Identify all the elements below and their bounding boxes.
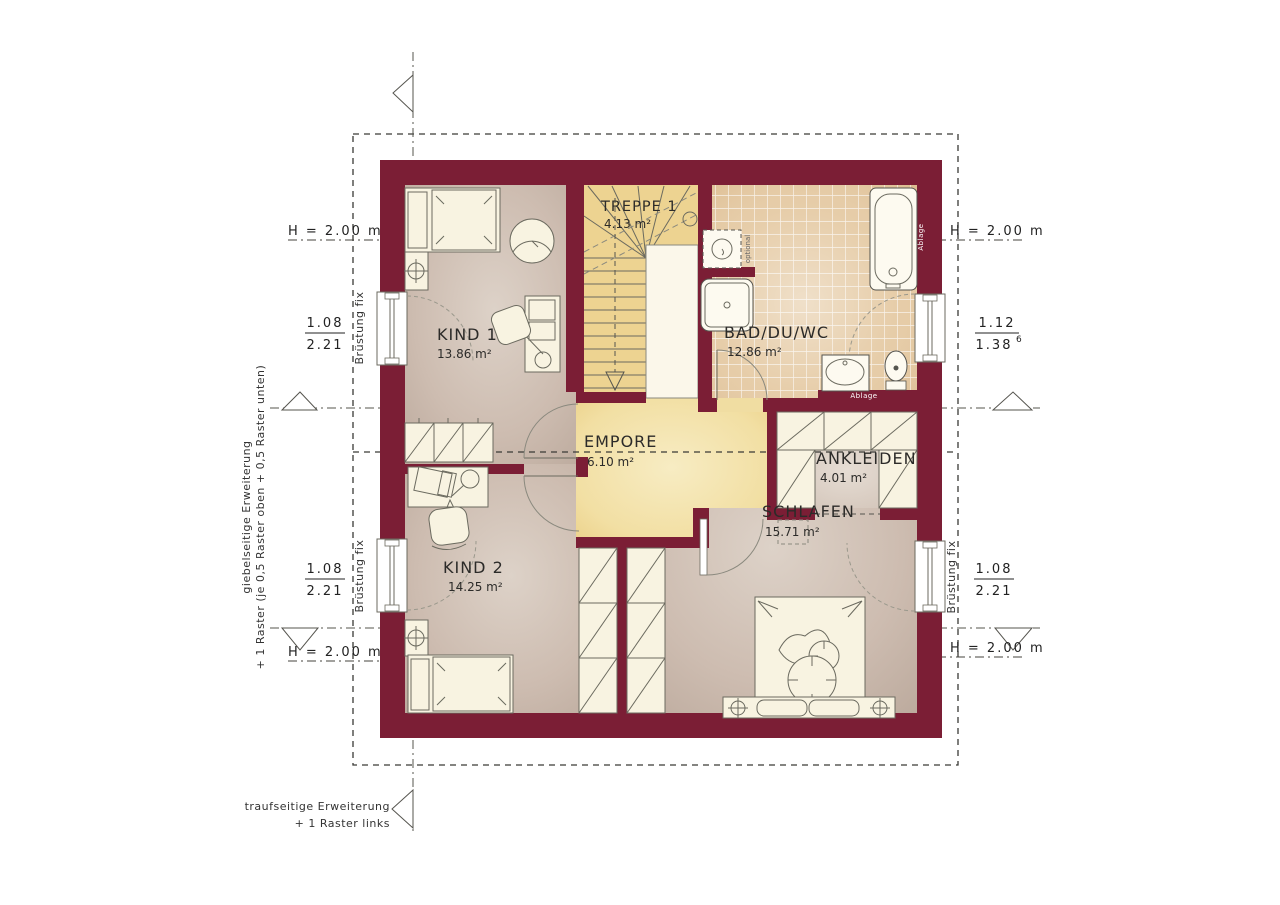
win-lb-height: 2.21 [307, 584, 344, 599]
wall-bath-south-a [698, 398, 717, 412]
gable-annotation-line2: + 1 Raster (je 0,5 Raster oben + 0,5 Ras… [254, 365, 267, 670]
optional-shower: optional [703, 230, 752, 268]
wall-outer-top [380, 160, 942, 185]
wall-bath-south-b [763, 398, 917, 412]
area-bad: 12.86 m² [727, 345, 782, 359]
headboard-schlafen [723, 697, 895, 718]
parapet-left-top: Brüstung fix [353, 292, 366, 365]
nightstand-lamp-kind2 [404, 620, 428, 656]
area-kind2: 14.25 m² [448, 580, 503, 594]
gable-extension-annotation: giebelseitige Erweiterung + 1 Raster (je… [240, 365, 267, 670]
wall-outer-left [380, 185, 405, 713]
wall-stair-west [566, 185, 584, 392]
window-right-bottom [915, 541, 945, 612]
floor-plan-canvas: H = 2.00 m H = 2.00 m H = 2.00 m H = 2.0… [0, 0, 1280, 905]
area-ankleiden: 4.01 m² [820, 471, 867, 485]
win-lb-width: 1.08 [307, 562, 344, 577]
wall-closet-divider [617, 548, 627, 713]
parapet-left-bottom: Brüstung fix [353, 540, 366, 613]
area-kind1: 13.86 m² [437, 347, 492, 361]
window-left-bottom [377, 539, 407, 612]
win-rb-height: 2.21 [976, 584, 1013, 599]
parapet-right-bottom: Brüstung fix [945, 541, 958, 614]
tub-shelf-label: Ablage [917, 223, 925, 250]
window-right-top [915, 294, 945, 362]
label-bad: BAD/DU/WC [724, 323, 829, 342]
toilet [885, 351, 907, 390]
height-label-top-left: H = 2.00 m [288, 224, 383, 239]
area-treppe: 4.13 m² [604, 217, 651, 231]
label-schlafen: SCHLAFEN [762, 502, 855, 521]
armchair-kind1 [510, 219, 554, 263]
bath-door-threshold [717, 398, 763, 412]
closet-kind2-column [579, 548, 617, 713]
section-marker-left-up [282, 392, 317, 410]
win-lt-width: 1.08 [307, 316, 344, 331]
optional-label: optional [744, 235, 752, 263]
bed-kind2 [408, 655, 513, 713]
gable-annotation-line1: giebelseitige Erweiterung [240, 440, 253, 593]
win-rt-width: 1.12 [979, 316, 1016, 331]
wall-ankleiden-south-b [880, 508, 917, 520]
window-dimension-right-top: 1.12 1.38 6 [975, 316, 1022, 353]
window-dimension-left-bottom: 1.08 2.21 [305, 562, 345, 599]
shelf-label: Ablage [850, 392, 877, 400]
label-ankleiden: ANKLEIDEN [816, 449, 917, 468]
win-lt-height: 2.21 [307, 338, 344, 353]
area-empore: 6.10 m² [587, 455, 634, 469]
window-dimension-left-top: 1.08 2.21 [305, 316, 345, 353]
wardrobe-kind1 [405, 418, 493, 462]
wall-stair-south [576, 392, 646, 403]
height-label-bottom-left: H = 2.00 m [288, 645, 383, 660]
win-rt-height: 1.38 [976, 338, 1013, 353]
label-kind1: KIND 1 [437, 325, 498, 344]
window-dimension-right-bottom: 1.08 2.21 [974, 562, 1014, 599]
bathtub [870, 188, 917, 290]
area-schlafen: 15.71 m² [765, 525, 820, 539]
stair-void [646, 245, 698, 398]
eaves-extension-annotation: traufseitige Erweiterung + 1 Raster link… [245, 800, 390, 830]
height-label-bottom-right: H = 2.00 m [950, 641, 1045, 656]
washbasin [822, 355, 869, 391]
eaves-annotation-line2: + 1 Raster links [295, 817, 390, 830]
win-rb-width: 1.08 [976, 562, 1013, 577]
label-empore: EMPORE [584, 432, 657, 451]
extension-marker-top [393, 75, 413, 112]
extension-marker-bottom [392, 790, 413, 828]
window-left-top [377, 292, 407, 365]
desk-kind2 [408, 467, 488, 510]
bed-kind1 [405, 188, 500, 252]
section-marker-right-up [993, 392, 1032, 410]
nightstand-lamp-kind1 [404, 252, 428, 290]
floor-plan-page: H = 2.00 m H = 2.00 m H = 2.00 m H = 2.0… [0, 0, 1280, 905]
label-kind2: KIND 2 [443, 558, 504, 577]
height-label-top-right: H = 2.00 m [950, 224, 1045, 239]
wall-outer-right [917, 185, 942, 713]
eaves-annotation-line1: traufseitige Erweiterung [245, 800, 390, 813]
label-treppe: TREPPE 1 [600, 199, 678, 215]
closet-schlafen-column [627, 548, 665, 713]
win-rt-height-sup: 6 [1016, 335, 1022, 345]
wall-bath-stub [698, 267, 755, 277]
bed-schlafen [755, 597, 865, 704]
